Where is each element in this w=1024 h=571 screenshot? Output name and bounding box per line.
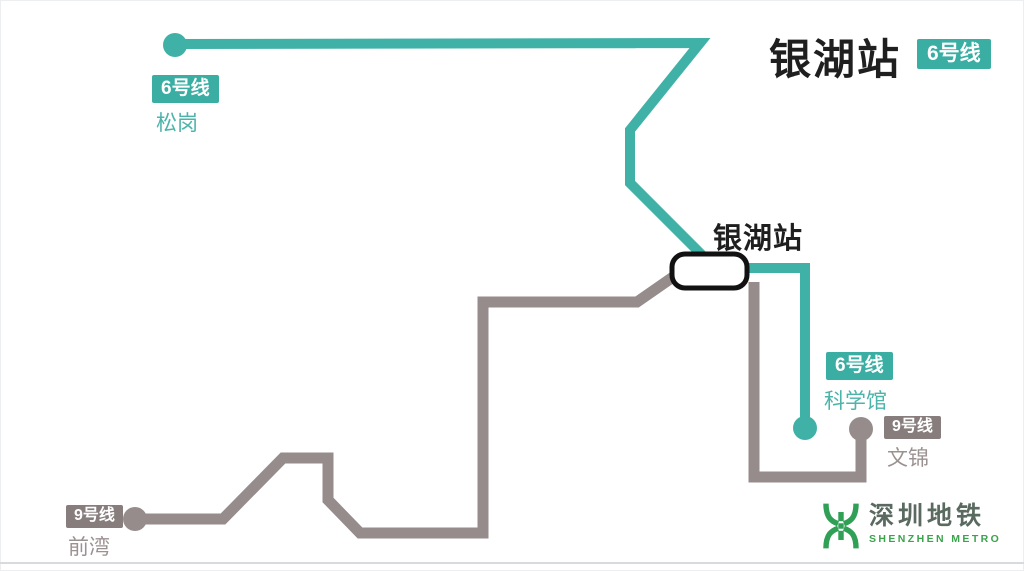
yinhu-station-marker — [672, 254, 747, 288]
logo-english-name: SHENZHEN METRO — [869, 533, 1001, 545]
qianwan-terminus-label: 前湾 — [68, 531, 110, 561]
line9-badge-qianwan: 9号线 — [66, 505, 123, 528]
page-title: 银湖站 — [769, 26, 901, 87]
line9-group — [123, 277, 873, 533]
line9-badge-wenjin: 9号线 — [884, 416, 941, 439]
shenzhen-metro-logo-icon — [820, 502, 862, 550]
line9-wenjin-terminus-dot — [849, 417, 873, 441]
wenjin-terminus-label: 文锦 — [887, 442, 929, 472]
kexueguan-terminus-label: 科学馆 — [824, 385, 887, 415]
songgang-terminus-label: 松岗 — [156, 107, 198, 137]
shenzhen-metro-logo-text: 深圳地铁 SHENZHEN METRO — [869, 502, 1001, 545]
line9-qianwan-terminus-dot — [123, 507, 147, 531]
line6-kexueguan-terminus-dot — [793, 416, 817, 440]
line9-path-west — [135, 277, 673, 533]
title-line6-badge: 6号线 — [917, 39, 991, 69]
line6-badge-kexueguan: 6号线 — [826, 352, 893, 380]
shenzhen-metro-logo: 深圳地铁 SHENZHEN METRO — [820, 502, 1001, 550]
line6-badge-songgang: 6号线 — [152, 75, 219, 103]
line6-songgang-terminus-dot — [163, 33, 187, 57]
logo-chinese-name: 深圳地铁 — [869, 502, 1001, 531]
bottom-edge-divider — [0, 562, 1024, 564]
yinhu-station-label: 银湖站 — [713, 215, 803, 257]
metro-infographic: 银湖站 6号线 银湖站 6号线 松岗 6号线 科学馆 9号线 文锦 9号线 前湾… — [0, 0, 1024, 571]
line6-path-west — [175, 43, 703, 256]
